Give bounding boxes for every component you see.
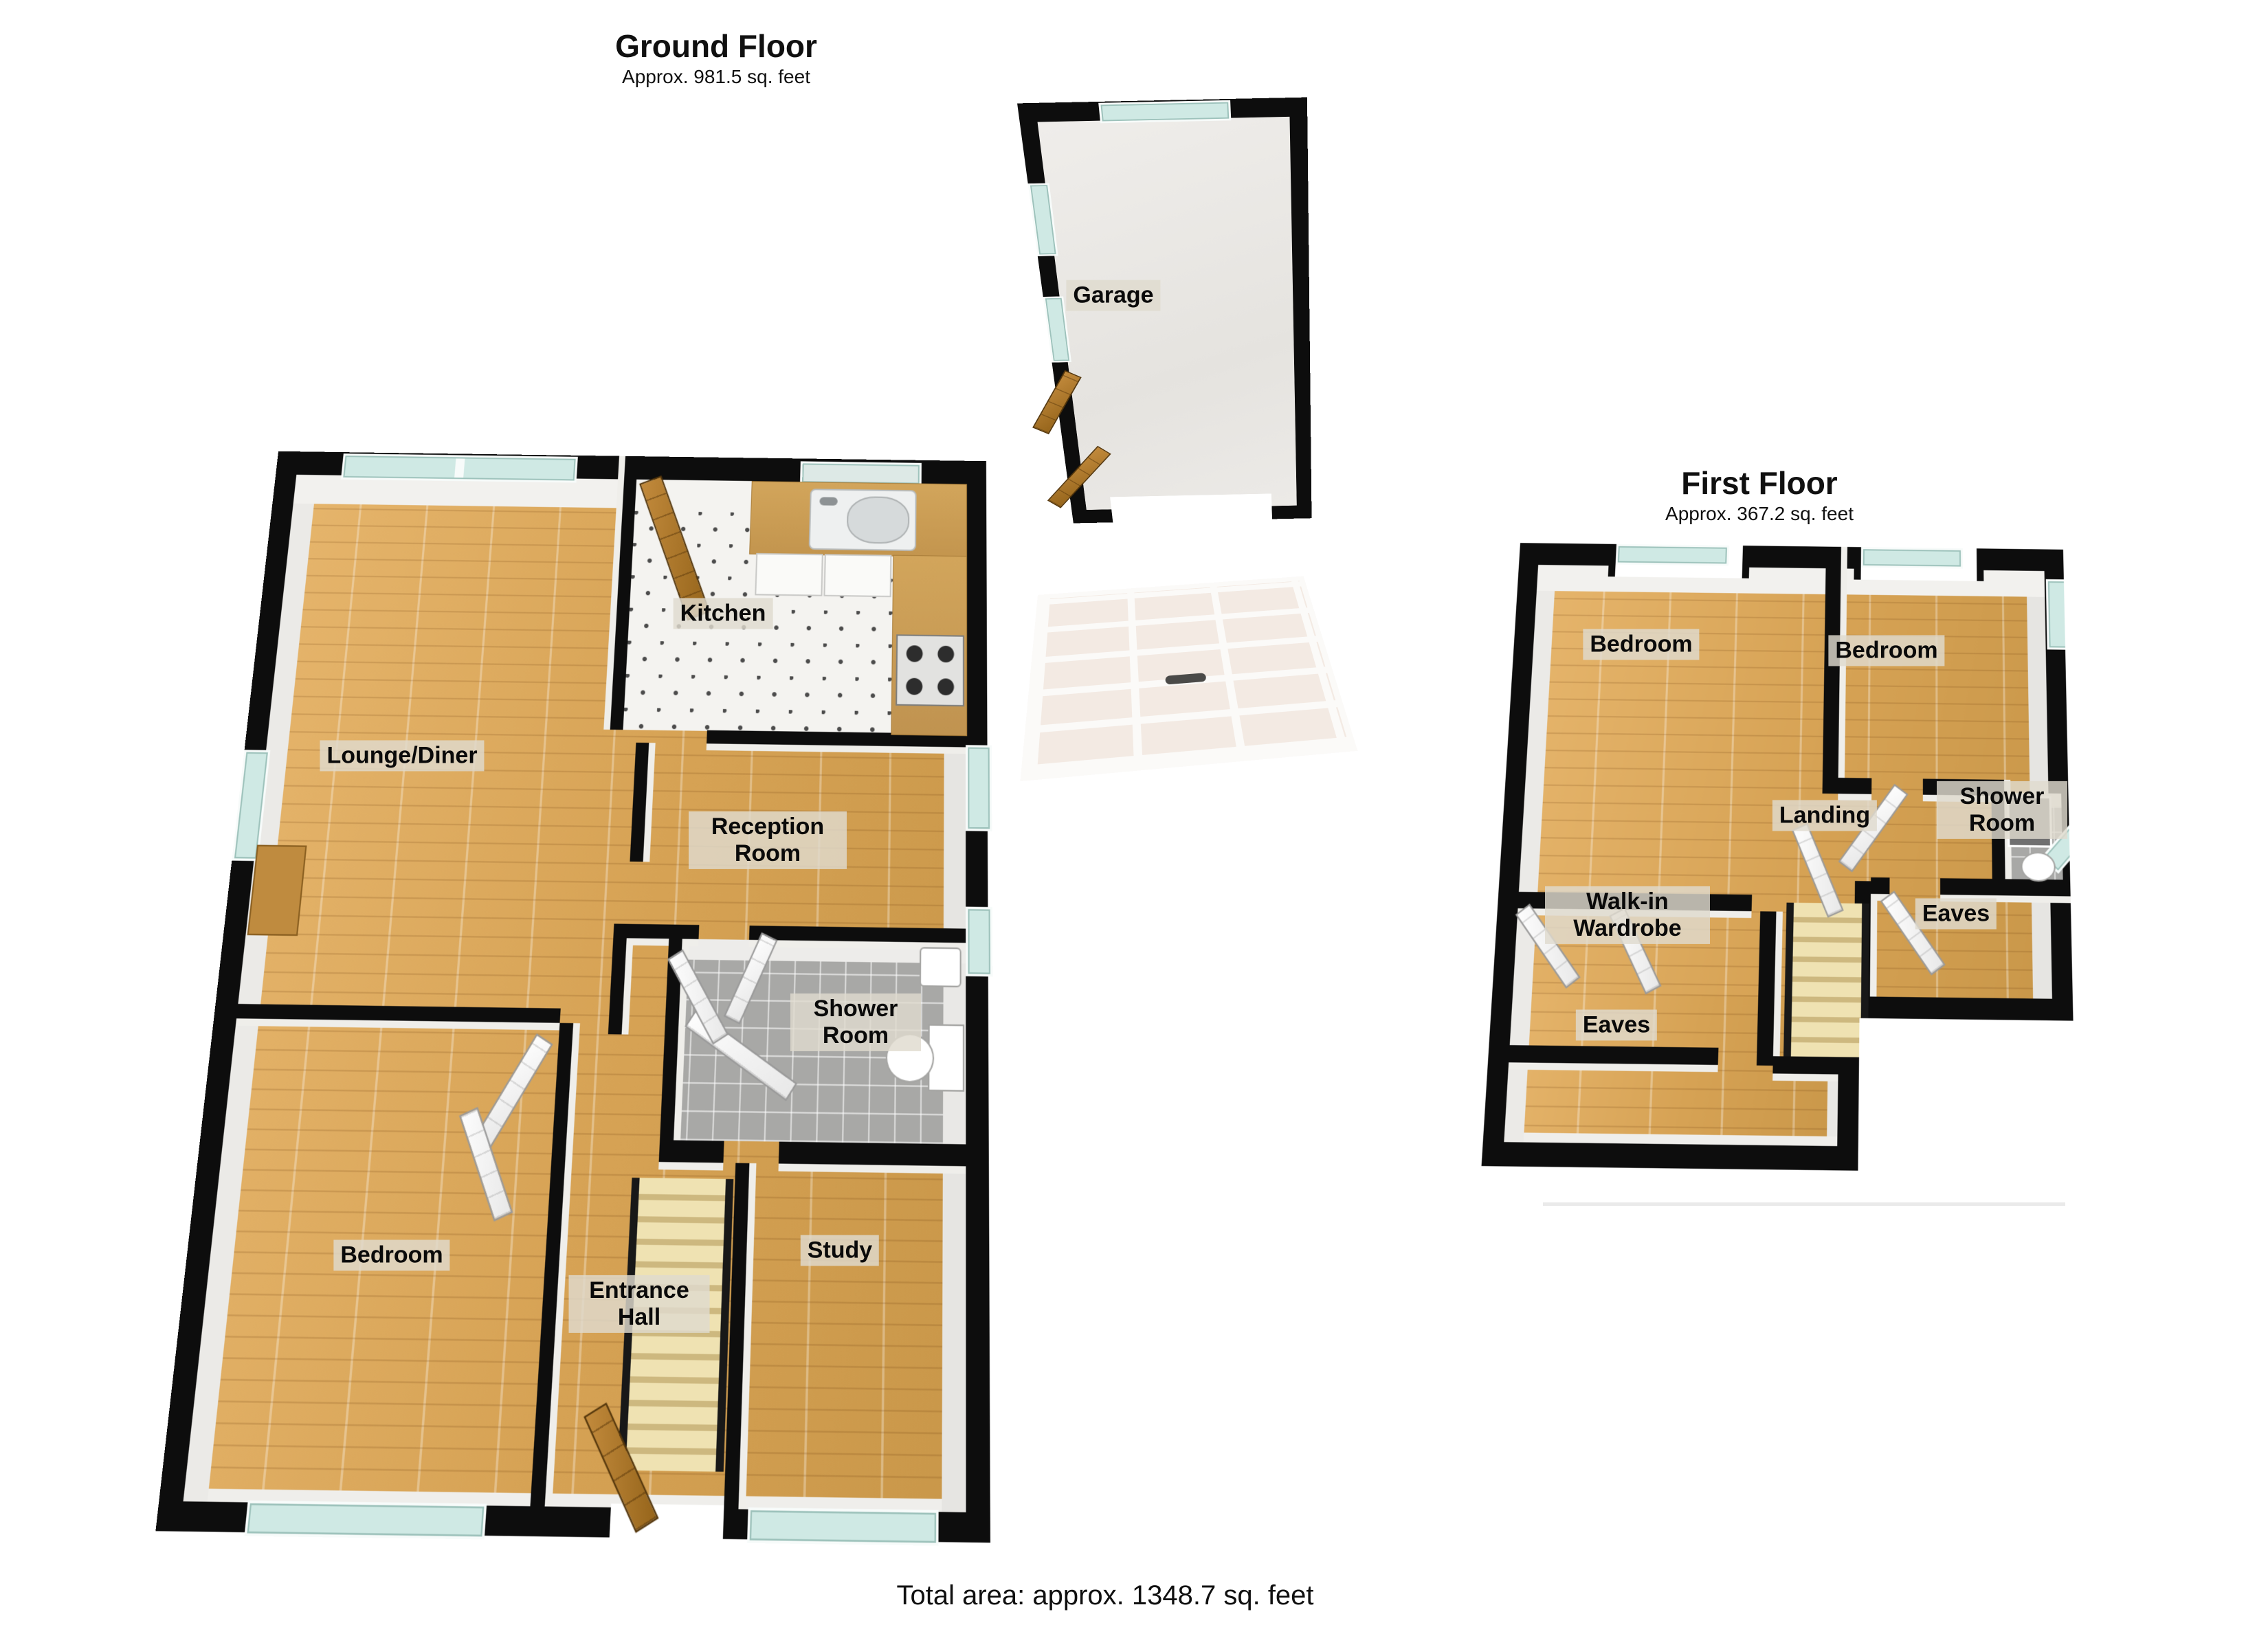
reception-bay-window: [966, 745, 992, 831]
kitchen-base-cabinet: [823, 554, 891, 597]
garage-plan: [1017, 100, 1307, 650]
label-study: Study: [801, 1235, 879, 1266]
wall: [659, 1140, 724, 1163]
dormer-window: [1608, 544, 1750, 579]
toilet-icon: [2021, 852, 2056, 882]
label-walk-in-wardrobe: Walk-in Wardrobe: [1545, 886, 1710, 944]
stairs: [1783, 903, 1869, 1057]
garage-walls: [1017, 98, 1311, 524]
bedroom-window: [245, 1501, 487, 1540]
wall: [1870, 996, 2074, 1020]
garage-floor: [1038, 117, 1297, 510]
total-area-text: Total area: approx. 1348.7 sq. feet: [896, 1580, 1313, 1611]
sliding-door-window: [341, 453, 578, 482]
sink-faucet: [819, 497, 837, 505]
wall: [749, 926, 966, 943]
kitchen-base-cabinet: [755, 553, 823, 596]
wall: [1757, 911, 1777, 1066]
wall: [779, 1142, 966, 1167]
first-floor-subtitle: Approx. 367.2 sq. feet: [1665, 503, 1854, 525]
label-shower-ground: Shower Room: [790, 994, 921, 1051]
wall: [1509, 1045, 1718, 1065]
wall: [1838, 778, 1871, 794]
label-bedroom-ground: Bedroom: [333, 1239, 449, 1270]
label-garage: Garage: [1066, 280, 1160, 311]
kitchen-sink: [809, 489, 917, 551]
label-entrance-hall: Entrance Hall: [569, 1275, 710, 1333]
garage-door-handle: [1165, 673, 1206, 685]
label-shower-first: Shower Room: [1937, 781, 2067, 839]
study-bay-window: [747, 1507, 939, 1546]
garage-rear-window: [1098, 100, 1231, 123]
bedroom-side-window: [2046, 579, 2069, 650]
garage-door: [1020, 576, 1357, 782]
label-eaves-right: Eaves: [1915, 898, 1997, 929]
hand-basin-icon: [920, 947, 961, 987]
wall: [613, 923, 699, 939]
floorplan-page: { "ground": { "title": "Ground Floor", "…: [0, 0, 2268, 1649]
garage-door-opening: [1110, 493, 1272, 522]
ground-floor-subtitle: Approx. 981.5 sq. feet: [622, 66, 810, 88]
label-eaves-bottom: Eaves: [1576, 1009, 1657, 1040]
label-kitchen: Kitchen: [674, 598, 773, 629]
first-floor-walls: [1482, 543, 2077, 1173]
stove-icon: [896, 634, 964, 706]
shower-side-window: [966, 907, 992, 977]
first-floor-title: First Floor: [1681, 464, 1837, 502]
label-reception: Reception Room: [689, 811, 847, 869]
label-landing: Landing: [1772, 800, 1877, 831]
desk: [247, 845, 307, 936]
ground-shadow-line: [1543, 1202, 2065, 1206]
wall: [1823, 547, 1841, 794]
label-lounge-diner: Lounge/Diner: [320, 740, 484, 771]
label-bedroom-left: Bedroom: [1583, 629, 1699, 660]
sink-basin: [847, 496, 910, 544]
window-glass: [1616, 544, 1729, 566]
wall: [1871, 877, 1890, 894]
ground-floor-title: Ground Floor: [615, 27, 817, 65]
label-bedroom-right: Bedroom: [1828, 635, 1944, 666]
dormer-window: [1854, 547, 1983, 581]
wall: [1940, 878, 2071, 896]
window-glass: [1861, 547, 1963, 568]
